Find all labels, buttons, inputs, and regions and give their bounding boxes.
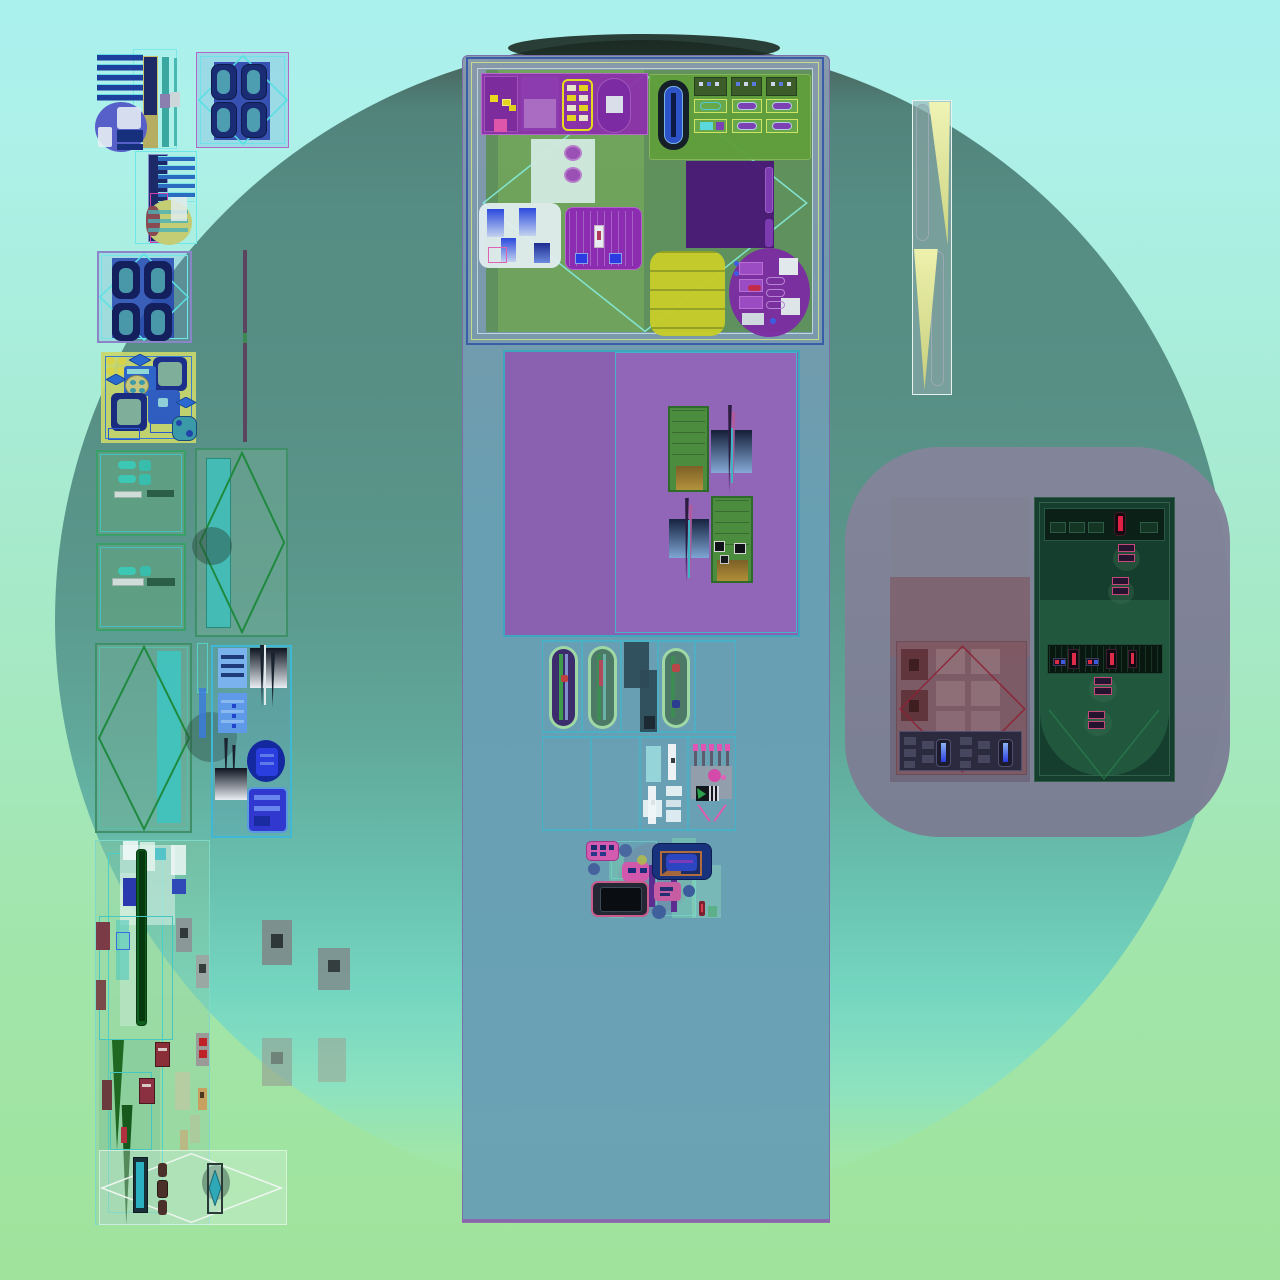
- pin-cap-2: [701, 744, 706, 751]
- kp-teal-strip: [127, 369, 149, 374]
- kp-outline-2: [108, 428, 140, 440]
- tl-slider-handle-1: [160, 94, 170, 108]
- rp-mr-chip-2-red: [1088, 660, 1092, 664]
- r2-chip-2: [666, 800, 681, 807]
- row2-cell-2: [591, 737, 640, 830]
- fp1-square-2: [139, 474, 151, 485]
- pr-slider-dot: [597, 231, 601, 240]
- fp1-dark-bar: [147, 490, 174, 497]
- rp-pill-b1: [1112, 577, 1129, 585]
- cp1-dot-1: [591, 845, 597, 850]
- bw-card-1-bar-3: [221, 673, 244, 677]
- row2-cell-1: [542, 737, 591, 830]
- rp-mr-chip-2-blue: [1094, 660, 1098, 664]
- kp-dial-dot-1: [130, 380, 136, 385]
- bw-bs-chip: [254, 816, 270, 826]
- cluster-green-chip: [708, 906, 717, 917]
- bw-card-2-line-2: [221, 710, 244, 713]
- cluster-khaki-dot: [637, 855, 647, 865]
- bw-circle-line-2: [260, 762, 274, 765]
- rp-strip-chip-1: [904, 737, 916, 745]
- mega-blue-outline-chip: [116, 932, 130, 950]
- form-panel-2-inner: [100, 547, 182, 627]
- cp2-mark-1: [628, 868, 636, 873]
- rp-pill-d1: [1088, 711, 1105, 719]
- gs-dot-9: [787, 82, 791, 86]
- mega-chip-white-3: [171, 845, 186, 875]
- cp1-dot-3: [609, 845, 614, 850]
- gs-chipblock-2: [731, 77, 762, 96]
- rp-mr-chip-1-blue: [1061, 660, 1065, 664]
- fp1-pill-1: [118, 461, 136, 469]
- gs-cell-4-chip: [700, 122, 713, 130]
- cluster-red-pin-core: [701, 904, 703, 912]
- capsule-3-dot-2: [672, 700, 680, 708]
- tr-key-1-pill: [217, 70, 230, 94]
- cp1-dot-4: [591, 852, 597, 856]
- pr-chip-2: [609, 253, 622, 264]
- bw-needle-line: [264, 645, 266, 705]
- pp-handle-2: [734, 543, 746, 554]
- tr-key-2-pill: [247, 70, 260, 94]
- pin-cap-4: [717, 744, 722, 751]
- rp-tb-chip-1: [1050, 522, 1066, 533]
- purple-sub-panel: [615, 352, 797, 633]
- kp-pump-dot: [158, 398, 168, 407]
- pd-red-pill: [748, 285, 761, 291]
- bottom-pill-2: [157, 1180, 168, 1198]
- pin-pink-circle: [708, 769, 721, 782]
- mid-circle-stripe-3: [148, 228, 188, 232]
- fp2-dark-bar: [147, 578, 175, 586]
- pr-chip-1: [575, 253, 588, 264]
- rp-knob-core: [1118, 516, 1123, 531]
- bw-card-2-dot-3: [232, 724, 236, 728]
- rp-strip-chip-2: [904, 749, 916, 757]
- gs-cell-5-pill: [737, 122, 757, 130]
- gs-dot-2: [707, 82, 711, 86]
- pd-dot-1: [734, 261, 739, 266]
- gray-chip-5-core: [271, 1052, 283, 1064]
- r2-chip-1: [666, 786, 682, 796]
- rp-tb-chip-4: [1140, 522, 1158, 533]
- gs-cell-1-pill: [700, 102, 721, 110]
- pp-needle-2c: [688, 520, 690, 578]
- kp-ts-dot-1: [176, 420, 182, 426]
- fp2-white-bar: [112, 578, 144, 586]
- mint-knob-1: [564, 145, 582, 161]
- kp-ts-dot-2: [186, 430, 193, 437]
- yw-cell-5: [567, 105, 576, 111]
- tan-strip-1: [175, 1072, 190, 1110]
- maroon-small: [102, 1080, 112, 1110]
- tl-stripes: [97, 54, 143, 104]
- bw-grad-square-2: [215, 768, 247, 800]
- pd-chip-3: [739, 296, 763, 309]
- bottom-slider-core: [136, 1162, 144, 1208]
- capsule-1-inner: [552, 649, 575, 726]
- rp-mr-pill-2-core: [1110, 653, 1114, 665]
- rp-strip-chip-4: [922, 741, 934, 749]
- bottom-pill-3: [158, 1200, 167, 1215]
- bw-bs-line-1: [254, 795, 280, 800]
- bw-card-1-bar-2: [221, 664, 244, 668]
- bw-bs-line-2: [254, 806, 280, 811]
- mega-redbrown-chip: [96, 980, 106, 1010]
- gs-chipblock-1: [694, 77, 727, 96]
- red-chip-1: [155, 1042, 170, 1067]
- rp-mr-pill-1-core: [1072, 653, 1076, 665]
- rp-pill-a2: [1118, 554, 1135, 562]
- rp-strip-chip-6: [960, 737, 972, 745]
- mini-slider-fill: [199, 688, 206, 738]
- pin-cap-5: [725, 744, 730, 751]
- r2-chip-3: [666, 810, 681, 822]
- rp-pill-a1: [1118, 544, 1135, 552]
- yw-cell-6: [579, 105, 588, 111]
- pin-pink-dot: [721, 775, 726, 780]
- tan-figure-2: [180, 1130, 188, 1150]
- rp-strip-chip-5: [922, 755, 934, 763]
- pd-chip-4: [742, 313, 764, 325]
- cp3-dash-1: [660, 887, 673, 891]
- bw-card-1-bar-1: [221, 655, 244, 659]
- rp-strip-chip-7: [960, 749, 972, 757]
- t-shape-chip: [644, 716, 655, 729]
- banner-pill-core: [606, 96, 623, 113]
- bw-card-2-dot-1: [232, 704, 236, 708]
- capsule-1-line-a: [559, 654, 563, 720]
- yw-cell-3: [567, 95, 576, 101]
- kp-diamond-3: [176, 397, 196, 408]
- pd-chip-1: [739, 262, 763, 275]
- red-dots: [121, 1127, 127, 1143]
- thin-line-tick: [243, 333, 247, 343]
- kp-dot-1: [106, 357, 115, 365]
- fp1-pill-2: [118, 475, 136, 483]
- pin-cap-3: [709, 744, 714, 751]
- wr-pink-outline: [488, 247, 507, 263]
- bdp-key-3-pill: [119, 310, 133, 335]
- pp-needle-1c: [731, 428, 733, 483]
- rp-tb-chip-3: [1088, 522, 1104, 533]
- rp-pill-c1: [1094, 677, 1112, 685]
- gs-dot-8: [779, 82, 783, 86]
- mega-maroon-chip: [96, 922, 110, 950]
- capsule-3-inner: [665, 651, 687, 725]
- mid-white-chip: [171, 197, 187, 221]
- dp-bar-2: [765, 219, 773, 247]
- pp-card-1-ticks: [672, 410, 705, 464]
- banner-pink-chip: [494, 119, 507, 132]
- tr-key-3-pill: [217, 108, 230, 132]
- r2-white-square: [643, 800, 662, 817]
- capsule-2-line-b: [603, 654, 606, 720]
- gs-cell-2-pill: [737, 102, 757, 110]
- gs-cell-4-pill: [716, 122, 724, 130]
- dark-purple-square: [686, 161, 774, 248]
- rp-pill-c2: [1094, 687, 1112, 695]
- gray-chip-6: [318, 1038, 346, 1082]
- rp-strip-chip-8: [960, 761, 971, 768]
- bw-grad-square-1: [250, 648, 287, 688]
- gs-cell-6-pill: [772, 122, 792, 130]
- bdp-key-2-pill: [151, 268, 165, 293]
- pp-card-1-tan: [676, 466, 703, 490]
- cluster-ball-3: [683, 885, 695, 897]
- tl-slider-handle-2: [170, 92, 180, 107]
- mega-chip-blue: [172, 879, 186, 894]
- capsule-3-dot-1: [672, 664, 680, 672]
- mega-chip-teal: [155, 848, 166, 860]
- kp-screen-1-glass: [158, 362, 182, 386]
- mega-outline-2: [99, 916, 173, 1040]
- bw-card-2-line-3: [221, 720, 244, 723]
- kp-dot-2: [118, 357, 126, 365]
- mega-teal-chip: [116, 920, 129, 980]
- gs-dot-7: [771, 82, 775, 86]
- banner-yellow-chip-1: [490, 95, 498, 102]
- gs-dot-3: [715, 82, 719, 86]
- banner-square-2-inner: [524, 99, 556, 128]
- kp-teal-square: [172, 416, 197, 441]
- rp-strip-chip-3: [904, 761, 915, 768]
- bdp-key-1-pill: [119, 268, 133, 293]
- gray-chip-3-core: [271, 934, 283, 948]
- capsule-1-line-b: [565, 654, 568, 720]
- rp-tb-chip-2: [1069, 522, 1085, 533]
- pin-cap-1: [693, 744, 698, 751]
- bw-card-2-dot-2: [232, 714, 236, 718]
- thin-line: [243, 250, 247, 442]
- r2-teal-chip: [646, 746, 661, 782]
- pd-dot-3: [770, 318, 776, 324]
- rp-pill-d2: [1088, 721, 1105, 729]
- dp-bar-1: [765, 167, 773, 213]
- yw-cell-1: [567, 85, 576, 91]
- bdp-key-4-pill: [151, 310, 165, 335]
- gs-dot-1: [699, 82, 703, 86]
- gs-dot-5: [744, 82, 748, 86]
- rp-mr-chip-1-red: [1055, 660, 1059, 664]
- gray-chip-2-core: [199, 964, 206, 973]
- wr-chip-1: [487, 209, 504, 237]
- pd-white-1: [779, 258, 798, 275]
- tl-disc-navy-2: [117, 144, 143, 150]
- gs-cell-3-pill: [772, 102, 792, 110]
- bottom-diamond: [100, 1153, 283, 1223]
- gs-dot-4: [736, 82, 740, 86]
- yw-cell-2: [579, 85, 588, 91]
- gs-capsule-core: [671, 93, 676, 137]
- yw-cell-8: [579, 115, 588, 121]
- pd-pill-2: [766, 289, 785, 297]
- tan-strip-2: [190, 1115, 200, 1143]
- pd-dot-2: [734, 271, 739, 276]
- fp1-square-1: [139, 460, 151, 471]
- rp-strip-chip-10: [978, 755, 990, 763]
- pp-handle-3: [720, 555, 729, 564]
- fp2-pill: [118, 567, 136, 575]
- dpl-diamond: [98, 645, 190, 831]
- bottom-pill-1: [158, 1163, 167, 1177]
- rs-bar-1: [916, 104, 929, 241]
- wr-chip-4: [534, 243, 550, 263]
- tl-disc-navy-1: [117, 130, 143, 142]
- kp-screen-2-glass: [117, 399, 141, 425]
- yellow-square-lines: [650, 251, 725, 336]
- gs-chipblock-3: [766, 77, 797, 96]
- capsule-1-dot: [561, 675, 568, 682]
- bottom-teal-diamond: [209, 1170, 221, 1206]
- pd-pill-1: [766, 277, 785, 285]
- mini-slider-track: [197, 643, 208, 693]
- kp-diamond-1: [129, 354, 151, 366]
- cp1-dot-2: [600, 845, 606, 850]
- red-chip-2-sq-1: [199, 1038, 207, 1046]
- banner-yellow-chip-3: [509, 105, 516, 111]
- gs-dot-6: [752, 82, 756, 86]
- rp-pill-b2: [1112, 587, 1129, 595]
- rp-left-top-band: [890, 497, 1030, 577]
- bw-card-2-line-1: [221, 700, 244, 703]
- yw-cell-4: [579, 95, 588, 101]
- gray-chip-4-core: [328, 960, 340, 972]
- kp-dial-dot-2: [139, 380, 145, 385]
- yw-cell-7: [567, 115, 576, 121]
- tr-key-4-pill: [247, 108, 260, 132]
- rp-strip-chip-9: [978, 741, 990, 749]
- rp-mr-pill-3-core: [1131, 653, 1134, 664]
- cluster-phone-screen: [600, 887, 642, 912]
- abstract-generative-composition: [0, 0, 1280, 1280]
- tl-disc-chip-1: [117, 107, 141, 129]
- bw-card-1: [218, 648, 247, 688]
- column-bottom-edge: [462, 1219, 830, 1223]
- row1-cell-5: [695, 641, 736, 732]
- wr-chip-2: [519, 208, 536, 236]
- bw-circle-line-1: [260, 754, 274, 757]
- cluster-ball-1: [619, 844, 632, 857]
- cluster-pink-1: [586, 841, 619, 861]
- fp2-square: [140, 566, 151, 576]
- tan-figure-1-mark: [200, 1092, 204, 1098]
- gray-chip-1-core: [180, 928, 188, 938]
- pin-barcode: [707, 786, 719, 801]
- tl-disc-chip-2: [98, 127, 112, 147]
- pp-handle-1: [714, 541, 725, 552]
- red-chip-3-dash: [142, 1084, 151, 1087]
- red-chip-3: [139, 1078, 155, 1104]
- rp-pill-core-1: [941, 743, 946, 762]
- cluster-pink-3: [654, 882, 681, 901]
- rp-pill-core-2: [1003, 743, 1008, 762]
- pd-pill-3: [766, 301, 785, 309]
- r2-slider-dot-1: [671, 758, 675, 763]
- red-chip-2-sq-2: [199, 1050, 207, 1058]
- cp2-mark-2: [640, 868, 647, 873]
- cp1-dot-5: [600, 852, 606, 856]
- red-chip-1-dash: [158, 1048, 167, 1051]
- capsule-2-red-line: [599, 660, 603, 686]
- cluster-ball-2: [588, 863, 600, 875]
- dpr-dark-circle: [192, 527, 232, 565]
- cp3-dash-2: [660, 893, 670, 896]
- mint-knob-2: [564, 167, 582, 183]
- cluster-ball-4: [652, 905, 666, 919]
- kp-diamond-2: [106, 374, 126, 385]
- mint-square: [531, 139, 595, 203]
- cluster-purple-line: [669, 860, 693, 863]
- fp1-white-bar: [114, 491, 142, 498]
